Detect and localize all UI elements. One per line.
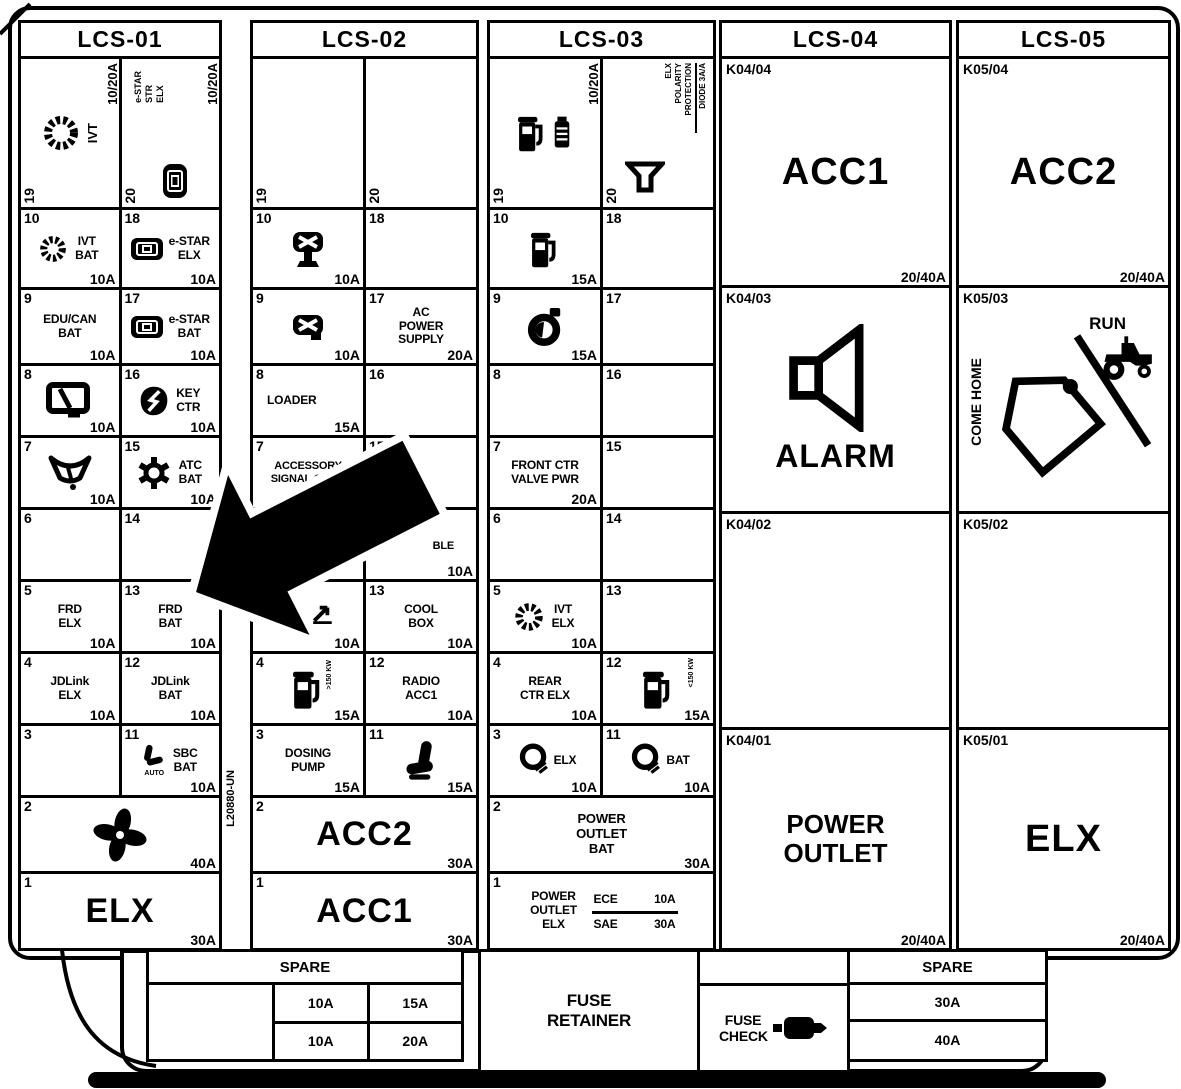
cell-number: 15 bbox=[606, 439, 622, 453]
cell-k05-01: K05/01 20/40A ELX bbox=[959, 730, 1168, 948]
cell-label: LOADER bbox=[267, 394, 316, 408]
mirror-icon bbox=[291, 229, 325, 269]
cell-lcs02-2: 2 30A ACC2 bbox=[253, 798, 476, 871]
amp-rating: 10A bbox=[190, 780, 216, 794]
cell-number: 12 bbox=[606, 655, 622, 669]
cell-number: 3 bbox=[24, 727, 32, 741]
cell-lcs03-8: 8 bbox=[490, 366, 603, 435]
amp-rating: 10A bbox=[447, 708, 473, 722]
cell-label: e-STAR BAT bbox=[168, 313, 210, 341]
cell-number: 2 bbox=[256, 799, 264, 813]
cell-label: FRD ELX bbox=[54, 603, 86, 631]
cell-number: 14 bbox=[369, 511, 385, 525]
fuse-check-top-strip bbox=[700, 952, 847, 986]
cell-lcs02-20: 20 bbox=[366, 59, 476, 207]
cell-lcs03-1: 1 POWER OUTLET ELX ECE 10A SAE 30A bbox=[490, 874, 713, 948]
cell-lcs01-2: 2 40A bbox=[21, 798, 219, 871]
cell-number: 7 bbox=[256, 439, 264, 453]
cell-number: 5 bbox=[493, 583, 501, 597]
spare-value: 10A bbox=[275, 1024, 370, 1060]
cell-label: POWER OUTLET BAT bbox=[569, 812, 635, 857]
cell-lcs02-9: 9 10A bbox=[253, 290, 366, 363]
icon-caption: AUTO bbox=[141, 770, 167, 777]
cell-number: 12 bbox=[369, 655, 385, 669]
amp-rating: 10A bbox=[90, 492, 116, 506]
cell-number: 8 bbox=[493, 367, 501, 381]
cell-number: 12 bbox=[125, 655, 141, 669]
fuel-pump-icon bbox=[518, 114, 546, 152]
fuse-check-label: FUSE CHECK bbox=[719, 1012, 767, 1044]
cell-number: 6 bbox=[24, 511, 32, 525]
bulb-dot bbox=[1063, 379, 1078, 394]
gear-icon bbox=[513, 601, 545, 633]
beacon-icon bbox=[526, 307, 564, 347]
cell-label: e-STAR bbox=[134, 71, 143, 103]
cell-lcs02-14: 14 BLE 10A bbox=[366, 510, 476, 579]
cell-label: e-STAR ELX bbox=[168, 235, 210, 263]
cell-lcs02-3: 3 15A DOSING PUMP bbox=[253, 726, 366, 795]
cell-number: 9 bbox=[256, 291, 264, 305]
column-title-lcs03: LCS-03 bbox=[490, 23, 713, 59]
cell-label: ACC1 bbox=[316, 892, 413, 931]
standard-label: SAE bbox=[594, 918, 618, 932]
cell-number: 7 bbox=[24, 439, 32, 453]
cell-lcs03-3: 3 10A ELX bbox=[490, 726, 603, 795]
cell-number: K04/02 bbox=[726, 516, 771, 532]
amp-rating: 15A bbox=[571, 348, 597, 362]
cell-lcs01-13: 13 10A FRD BAT bbox=[122, 582, 220, 651]
cell-label: BLE bbox=[433, 540, 454, 553]
cell-number: 13 bbox=[369, 583, 385, 597]
cell-lcs03-13: 13 bbox=[603, 582, 713, 651]
cell-number: 2 bbox=[493, 799, 501, 813]
cell-number: 10 bbox=[24, 211, 40, 225]
cell-number: 5 bbox=[24, 583, 32, 597]
cell-number: 19 bbox=[491, 188, 505, 204]
cell-label: DOSING PUMP bbox=[283, 747, 333, 775]
spare-fuse-table-left: SPARE 10A 15A 10A 20A bbox=[146, 949, 464, 1062]
cell-lcs02-12: 12 10A RADIO ACC1 bbox=[366, 654, 476, 723]
cell-number: 15 bbox=[369, 439, 385, 453]
column-title-lcs01: LCS-01 bbox=[21, 23, 219, 59]
amp-rating: 10A bbox=[334, 272, 360, 286]
cell-number: 5 bbox=[256, 583, 264, 597]
amp-rating: 15A bbox=[334, 780, 360, 794]
cell-number: 7 bbox=[493, 439, 501, 453]
cell-number: 20 bbox=[604, 188, 618, 204]
amp-rating: 15A bbox=[684, 708, 710, 722]
cell-number: K05/04 bbox=[963, 61, 1008, 77]
spare-value: 10A bbox=[275, 985, 370, 1021]
cell-lcs01-4: 4 10A JDLink ELX bbox=[21, 654, 122, 723]
amp-rating: 15A bbox=[334, 420, 360, 434]
cell-lcs01-17: 17 10A e-STAR BAT bbox=[122, 290, 220, 363]
cell-label: AC POWER SUPPLY bbox=[389, 306, 453, 347]
amp-rating: 30A bbox=[684, 856, 710, 870]
cell-lcs01-20: 20 10/20A e-STAR STR ELX bbox=[122, 59, 220, 207]
mirror-icon bbox=[291, 312, 325, 342]
cell-number: 16 bbox=[369, 367, 385, 381]
cell-number: 1 bbox=[24, 875, 32, 889]
amp-rating: 10A bbox=[571, 780, 597, 794]
cell-number: 14 bbox=[606, 511, 622, 525]
cell-number: 9 bbox=[493, 291, 501, 305]
fuse-check-box: FUSE CHECK bbox=[697, 949, 850, 1073]
cell-label: JDLink ELX bbox=[50, 675, 90, 703]
cell-number: 4 bbox=[493, 655, 501, 669]
amp-rating: 10A bbox=[190, 708, 216, 722]
cell-lcs03-2: 2 30A POWER OUTLET BAT bbox=[490, 798, 713, 871]
cell-label: ACC2 bbox=[316, 815, 413, 854]
ece-sae-table: ECE 10A SAE 30A bbox=[592, 891, 678, 932]
cell-number: 3 bbox=[256, 727, 264, 741]
fuse-box-diagram: { "frame": { "side_label": "L20880-UN" }… bbox=[0, 0, 1181, 1089]
cell-label: PROTECTION bbox=[685, 63, 693, 115]
amp-rating: 10A bbox=[684, 780, 710, 794]
come-home-run-icon bbox=[987, 310, 1167, 500]
cell-label: ATC BAT bbox=[176, 459, 204, 487]
cell-label: ACC2 bbox=[1010, 151, 1117, 194]
amp-rating: 10A bbox=[447, 564, 473, 578]
column-lcs-04: LCS-04 K04/04 20/40A ACC1 K04/03 ALARM K… bbox=[719, 20, 952, 951]
amp-rating: 10A bbox=[334, 636, 360, 650]
cell-lcs02-17: 17 20A AC POWER SUPPLY bbox=[366, 290, 476, 363]
cell-lcs01-12: 12 10A JDLink BAT bbox=[122, 654, 220, 723]
cell-label: REAR CTR ELX bbox=[516, 675, 574, 703]
cell-lcs03-7: 7 20A FRONT CTR VALVE PWR bbox=[490, 438, 603, 507]
cell-number: 11 bbox=[606, 727, 621, 741]
cell-lcs01-16: 16 10A KEY CTR bbox=[122, 366, 220, 435]
amp-rating: 10/20A bbox=[106, 63, 119, 105]
column-title-lcs05: LCS-05 bbox=[959, 23, 1168, 59]
seat-icon bbox=[401, 739, 441, 783]
cell-lcs01-9: 9 10A EDU/CAN BAT bbox=[21, 290, 122, 363]
cell-k04-01: K04/01 20/40A POWER OUTLET bbox=[722, 730, 949, 948]
amp-rating: 10A bbox=[190, 348, 216, 362]
cell-label: POWER OUTLET ELX bbox=[526, 890, 582, 931]
front-wiper-icon bbox=[47, 454, 93, 492]
column-lcs-03: LCS-03 19 10/20A 20 ELX POLARITY PROTECT… bbox=[487, 20, 716, 951]
display-icon bbox=[130, 237, 164, 261]
amp-rating: 10A bbox=[190, 420, 216, 434]
cell-k04-03: K04/03 ALARM bbox=[722, 288, 949, 511]
cell-lcs02-15: 15 bbox=[366, 438, 476, 507]
cell-lcs03-14: 14 bbox=[603, 510, 713, 579]
cell-label: KEY CTR bbox=[174, 387, 202, 415]
stack-icon bbox=[552, 116, 572, 150]
cell-label: STR bbox=[145, 71, 154, 103]
auto-seat-icon: AUTO bbox=[141, 744, 167, 777]
cell-k04-04: K04/04 20/40A ACC1 bbox=[722, 59, 949, 285]
diagram-reference-label: L20880-UN bbox=[226, 770, 237, 827]
cell-label: ACC1 bbox=[782, 151, 889, 194]
amp-rating: 10A bbox=[447, 636, 473, 650]
cell-number: 13 bbox=[125, 583, 141, 597]
spare-value: 20A bbox=[370, 1024, 462, 1060]
cell-number: 10 bbox=[256, 211, 272, 225]
cell-k05-02: K05/02 bbox=[959, 514, 1168, 727]
speaker-icon bbox=[784, 324, 888, 432]
cell-lcs02-7: 7 ACCESSORY SIGNAL CONN bbox=[253, 438, 366, 507]
amp-rating: 30A bbox=[190, 933, 216, 947]
cell-number: 16 bbox=[125, 367, 141, 381]
amp-rating: 10A bbox=[90, 272, 116, 286]
cell-lcs02-4: 4 15A >150 KW bbox=[253, 654, 366, 723]
cell-number: 20 bbox=[123, 188, 137, 204]
cell-number: 10 bbox=[493, 211, 509, 225]
cell-number: 18 bbox=[606, 211, 622, 225]
gear-icon bbox=[40, 112, 82, 154]
cell-number: K04/04 bbox=[726, 61, 771, 77]
key-icon bbox=[138, 383, 170, 419]
cell-lcs01-10: 10 10A IVT BAT bbox=[21, 210, 122, 287]
column-title-lcs02: LCS-02 bbox=[253, 23, 476, 59]
cell-lcs02-5: 5 10A bbox=[253, 582, 366, 651]
cell-k04-02: K04/02 bbox=[722, 514, 949, 727]
cell-lcs01-15: 15 10A ATC BAT bbox=[122, 438, 220, 507]
cell-number: K04/03 bbox=[726, 290, 771, 306]
fuel-pump-icon bbox=[643, 669, 673, 709]
amp-rating: 30A bbox=[654, 918, 675, 932]
power-note: >150 KW bbox=[326, 660, 333, 689]
cell-number: K05/01 bbox=[963, 732, 1008, 748]
amp-rating: 10A bbox=[190, 492, 216, 506]
cell-label: ALARM bbox=[775, 438, 896, 475]
cell-number: 4 bbox=[256, 655, 264, 669]
cell-lcs02-8: 8 15A LOADER bbox=[253, 366, 366, 435]
column-lcs-01: LCS-01 19 10/20A IVT 20 10/20A e-STAR ST… bbox=[18, 20, 222, 951]
cell-label: ELX bbox=[156, 71, 165, 103]
divider bbox=[695, 63, 697, 133]
cell-label: DIODE 3A/A bbox=[699, 63, 707, 109]
cell-k05-04: K05/04 20/40A ACC2 bbox=[959, 59, 1168, 285]
amp-rating: 10A bbox=[654, 893, 675, 907]
cell-label: IVT bbox=[86, 123, 99, 143]
cell-number: 13 bbox=[606, 583, 622, 597]
bulb-icon bbox=[626, 743, 662, 779]
amp-rating: 15A bbox=[334, 708, 360, 722]
horn-icon bbox=[625, 161, 665, 193]
cell-label: POWER OUTLET bbox=[776, 810, 896, 867]
spare-value: 40A bbox=[850, 1022, 1045, 1058]
cell-lcs03-4: 4 10A REAR CTR ELX bbox=[490, 654, 603, 723]
cell-lcs02-10: 10 10A bbox=[253, 210, 366, 287]
amp-rating: 30A bbox=[447, 856, 473, 870]
cell-number: 1 bbox=[493, 875, 501, 889]
cell-lcs03-11: 11 10A BAT bbox=[603, 726, 713, 795]
cell-lcs03-10: 10 15A bbox=[490, 210, 603, 287]
amp-rating: 20/40A bbox=[901, 270, 946, 284]
display-icon bbox=[130, 315, 164, 339]
spare-fuse-table-right: SPARE 30A 40A bbox=[847, 949, 1048, 1062]
bulb-icon bbox=[514, 743, 550, 779]
amp-rating: 10/20A bbox=[206, 63, 219, 105]
standard-label: ECE bbox=[594, 893, 618, 907]
amp-rating: 30A bbox=[447, 933, 473, 947]
amp-rating: 20/40A bbox=[901, 933, 946, 947]
fuse-retainer-label: FUSE RETAINER bbox=[534, 991, 644, 1030]
adjust-arrow-icon bbox=[311, 600, 335, 624]
cell-lcs03-5: 5 10A IVT ELX bbox=[490, 582, 603, 651]
cell-lcs01-19: 19 10/20A IVT bbox=[21, 59, 122, 207]
cell-label: BAT bbox=[666, 754, 689, 768]
amp-rating: 10A bbox=[571, 708, 597, 722]
fuel-pump-icon bbox=[293, 669, 323, 709]
cell-number: 17 bbox=[125, 291, 141, 305]
column-lcs-05: LCS-05 K05/04 20/40A ACC2 K05/03 COME HO… bbox=[956, 20, 1171, 951]
cell-lcs02-13: 13 10A COOL BOX bbox=[366, 582, 476, 651]
amp-rating: 20/40A bbox=[1120, 270, 1165, 284]
cell-label: SBC BAT bbox=[171, 747, 199, 775]
amp-rating: 10A bbox=[90, 420, 116, 434]
cell-lcs01-8: 8 10A bbox=[21, 366, 122, 435]
come-home-label: COME HOME bbox=[969, 358, 983, 446]
cell-lcs03-19: 19 10/20A bbox=[490, 59, 603, 207]
cell-lcs03-12: 12 15A <150 KW bbox=[603, 654, 713, 723]
cell-number: K04/01 bbox=[726, 732, 771, 748]
cell-number: 15 bbox=[125, 439, 141, 453]
amp-rating: 10/20A bbox=[587, 63, 600, 105]
spare-empty-cell bbox=[149, 985, 275, 1059]
display-icon bbox=[162, 163, 188, 199]
cell-label: POLARITY bbox=[675, 63, 683, 103]
amp-rating: 10A bbox=[90, 348, 116, 362]
cell-number: 6 bbox=[493, 511, 501, 525]
rear-wiper-icon bbox=[46, 382, 94, 420]
cell-number: 1 bbox=[256, 875, 264, 889]
cell-number: 16 bbox=[606, 367, 622, 381]
amp-rating: 10A bbox=[90, 708, 116, 722]
cell-lcs02-16: 16 bbox=[366, 366, 476, 435]
cell-k05-03: K05/03 COME HOME RUN bbox=[959, 288, 1168, 511]
cell-label: IVT ELX bbox=[549, 603, 577, 631]
spare-value: 30A bbox=[850, 985, 1045, 1022]
cell-lcs02-19: 19 bbox=[253, 59, 366, 207]
cell-lcs03-18: 18 bbox=[603, 210, 713, 287]
amp-rating: 15A bbox=[447, 780, 473, 794]
cell-lcs01-18: 18 10A e-STAR ELX bbox=[122, 210, 220, 287]
amp-rating: 10A bbox=[190, 636, 216, 650]
cell-lcs03-17: 17 bbox=[603, 290, 713, 363]
cell-label: JDLink BAT bbox=[150, 675, 190, 703]
cell-number: 6 bbox=[256, 511, 264, 525]
cell-number: 11 bbox=[125, 727, 140, 741]
power-note: <150 KW bbox=[688, 658, 695, 687]
tractor-icon bbox=[1104, 336, 1152, 380]
fan-icon bbox=[92, 808, 148, 862]
cell-number: 4 bbox=[24, 655, 32, 669]
fuse-retainer-box: FUSE RETAINER bbox=[478, 949, 700, 1073]
cell-number: 14 bbox=[125, 511, 141, 525]
cell-number: 18 bbox=[369, 211, 385, 225]
cell-number: 8 bbox=[256, 367, 264, 381]
cell-label: ELX bbox=[554, 754, 577, 768]
cell-number: K05/03 bbox=[963, 290, 1008, 306]
amp-rating: 20/40A bbox=[1120, 933, 1165, 947]
spare-value: 15A bbox=[370, 985, 462, 1021]
cell-lcs03-16: 16 bbox=[603, 366, 713, 435]
cell-label: EDU/CAN BAT bbox=[41, 313, 99, 341]
cell-number: 20 bbox=[367, 188, 381, 204]
cell-lcs03-20: 20 ELX POLARITY PROTECTION DIODE 3A/A bbox=[603, 59, 713, 207]
atc-star-icon bbox=[136, 454, 172, 492]
cell-lcs02-18: 18 bbox=[366, 210, 476, 287]
cell-number: 2 bbox=[24, 799, 32, 813]
cell-lcs02-11: 11 15A bbox=[366, 726, 476, 795]
cell-number: 8 bbox=[24, 367, 32, 381]
cell-number: 18 bbox=[125, 211, 141, 225]
cell-lcs02-1: 1 30A ACC1 bbox=[253, 874, 476, 948]
cell-lcs01-14: 14 bbox=[122, 510, 220, 579]
fuse-icon bbox=[772, 1015, 828, 1041]
cell-lcs02-6: 6 bbox=[253, 510, 366, 579]
cell-number: 3 bbox=[493, 727, 501, 741]
cell-lcs03-9: 9 15A bbox=[490, 290, 603, 363]
cell-number: 9 bbox=[24, 291, 32, 305]
cell-lcs01-7: 7 10A bbox=[21, 438, 122, 507]
housing-bottom-edge bbox=[88, 1072, 1106, 1088]
cell-number: 19 bbox=[254, 188, 268, 204]
cell-lcs01-3: 3 bbox=[21, 726, 122, 795]
column-lcs-02: LCS-02 19 20 10 10A 18 9 10A 17 20A AC P… bbox=[250, 20, 479, 951]
amp-rating: 10A bbox=[190, 272, 216, 286]
amp-rating: 40A bbox=[190, 856, 216, 870]
gear-icon bbox=[38, 234, 68, 264]
cell-label: FRONT CTR VALVE PWR bbox=[504, 459, 586, 487]
fuel-pump-icon bbox=[531, 229, 559, 269]
cell-number: 17 bbox=[369, 291, 385, 305]
cell-number: K05/02 bbox=[963, 516, 1008, 532]
cell-label: ELX bbox=[1025, 818, 1102, 861]
cell-lcs01-11: 11 10A AUTO SBC BAT bbox=[122, 726, 220, 795]
cell-number: 11 bbox=[369, 727, 384, 741]
cell-label: FRD BAT bbox=[154, 603, 186, 631]
cell-label: COOL BOX bbox=[401, 603, 441, 631]
spare-title: SPARE bbox=[850, 952, 1045, 985]
cell-label: ELX bbox=[665, 63, 673, 79]
amp-rating: 10A bbox=[571, 636, 597, 650]
cell-label: ACCESSORY SIGNAL CONN bbox=[265, 460, 351, 485]
amp-rating: 15A bbox=[571, 272, 597, 286]
cell-number: 17 bbox=[606, 291, 622, 305]
cell-lcs01-6: 6 bbox=[21, 510, 122, 579]
cell-lcs03-15: 15 bbox=[603, 438, 713, 507]
cell-label: ELX bbox=[85, 892, 154, 931]
amp-rating: 10A bbox=[334, 348, 360, 362]
cell-lcs03-6: 6 bbox=[490, 510, 603, 579]
amp-rating: 10A bbox=[90, 636, 116, 650]
amp-rating: 20A bbox=[447, 348, 473, 362]
column-title-lcs04: LCS-04 bbox=[722, 23, 949, 59]
cell-label: IVT BAT bbox=[72, 235, 102, 263]
cell-number: 19 bbox=[22, 188, 36, 204]
cell-label: RADIO ACC1 bbox=[398, 675, 444, 703]
spare-title: SPARE bbox=[149, 952, 461, 985]
amp-rating: 20A bbox=[571, 492, 597, 506]
cell-lcs01-1: 1 30A ELX bbox=[21, 874, 219, 948]
cell-lcs01-5: 5 10A FRD ELX bbox=[21, 582, 122, 651]
